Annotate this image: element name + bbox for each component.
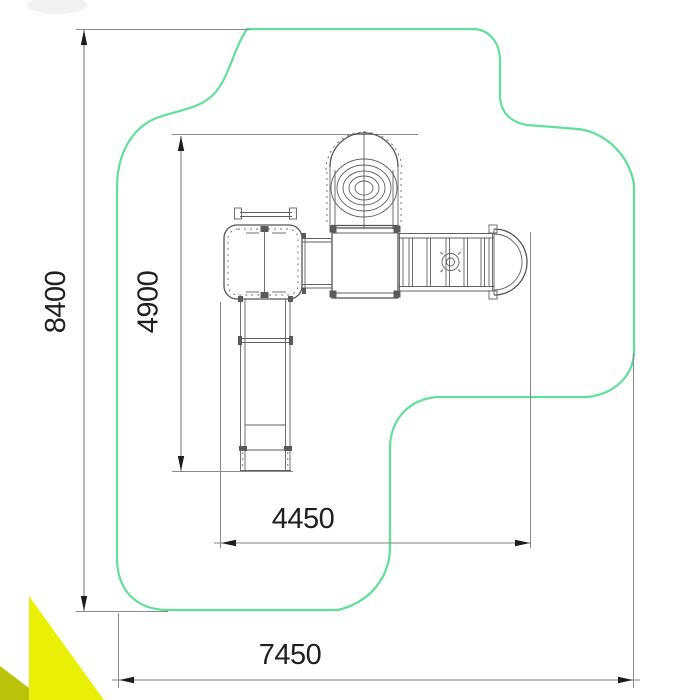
- scan-smudge: [27, 0, 87, 14]
- dimension-equipment-height: 4900: [133, 135, 418, 472]
- drawing-canvas: 8400 4900 4450 7450: [0, 0, 700, 700]
- slide: [238, 296, 293, 471]
- dimension-label-equipment-height: 4900: [133, 271, 165, 334]
- playground-structure: [224, 131, 527, 471]
- left-platform: [224, 208, 302, 299]
- handrail: [235, 208, 297, 219]
- porthole: [441, 252, 461, 272]
- safety-zone-outline: [117, 29, 634, 610]
- dimension-label-overall-height: 8400: [40, 271, 72, 334]
- arrow-left-icon: [221, 540, 236, 546]
- dimension-overall-width: 7450: [112, 353, 640, 688]
- connector-passage: [302, 233, 332, 294]
- corner-ribbon-shade: [0, 666, 29, 700]
- rung-bridge: [398, 233, 494, 291]
- dimension-label-overall-width: 7450: [259, 639, 322, 671]
- arrow-up-icon: [81, 30, 87, 45]
- arrow-right-icon: [618, 677, 633, 683]
- spiral-climber: [326, 131, 402, 229]
- lookout-dome: [489, 225, 527, 299]
- dimension-equipment-width: 4450: [214, 232, 531, 548]
- arrow-down-icon: [178, 456, 184, 471]
- arrow-right-icon: [515, 540, 530, 546]
- dimension-label-equipment-width: 4450: [272, 503, 335, 535]
- center-platform: [330, 226, 401, 299]
- arrow-left-icon: [119, 677, 134, 683]
- arrow-down-icon: [81, 596, 87, 611]
- arrow-up-icon: [178, 136, 184, 151]
